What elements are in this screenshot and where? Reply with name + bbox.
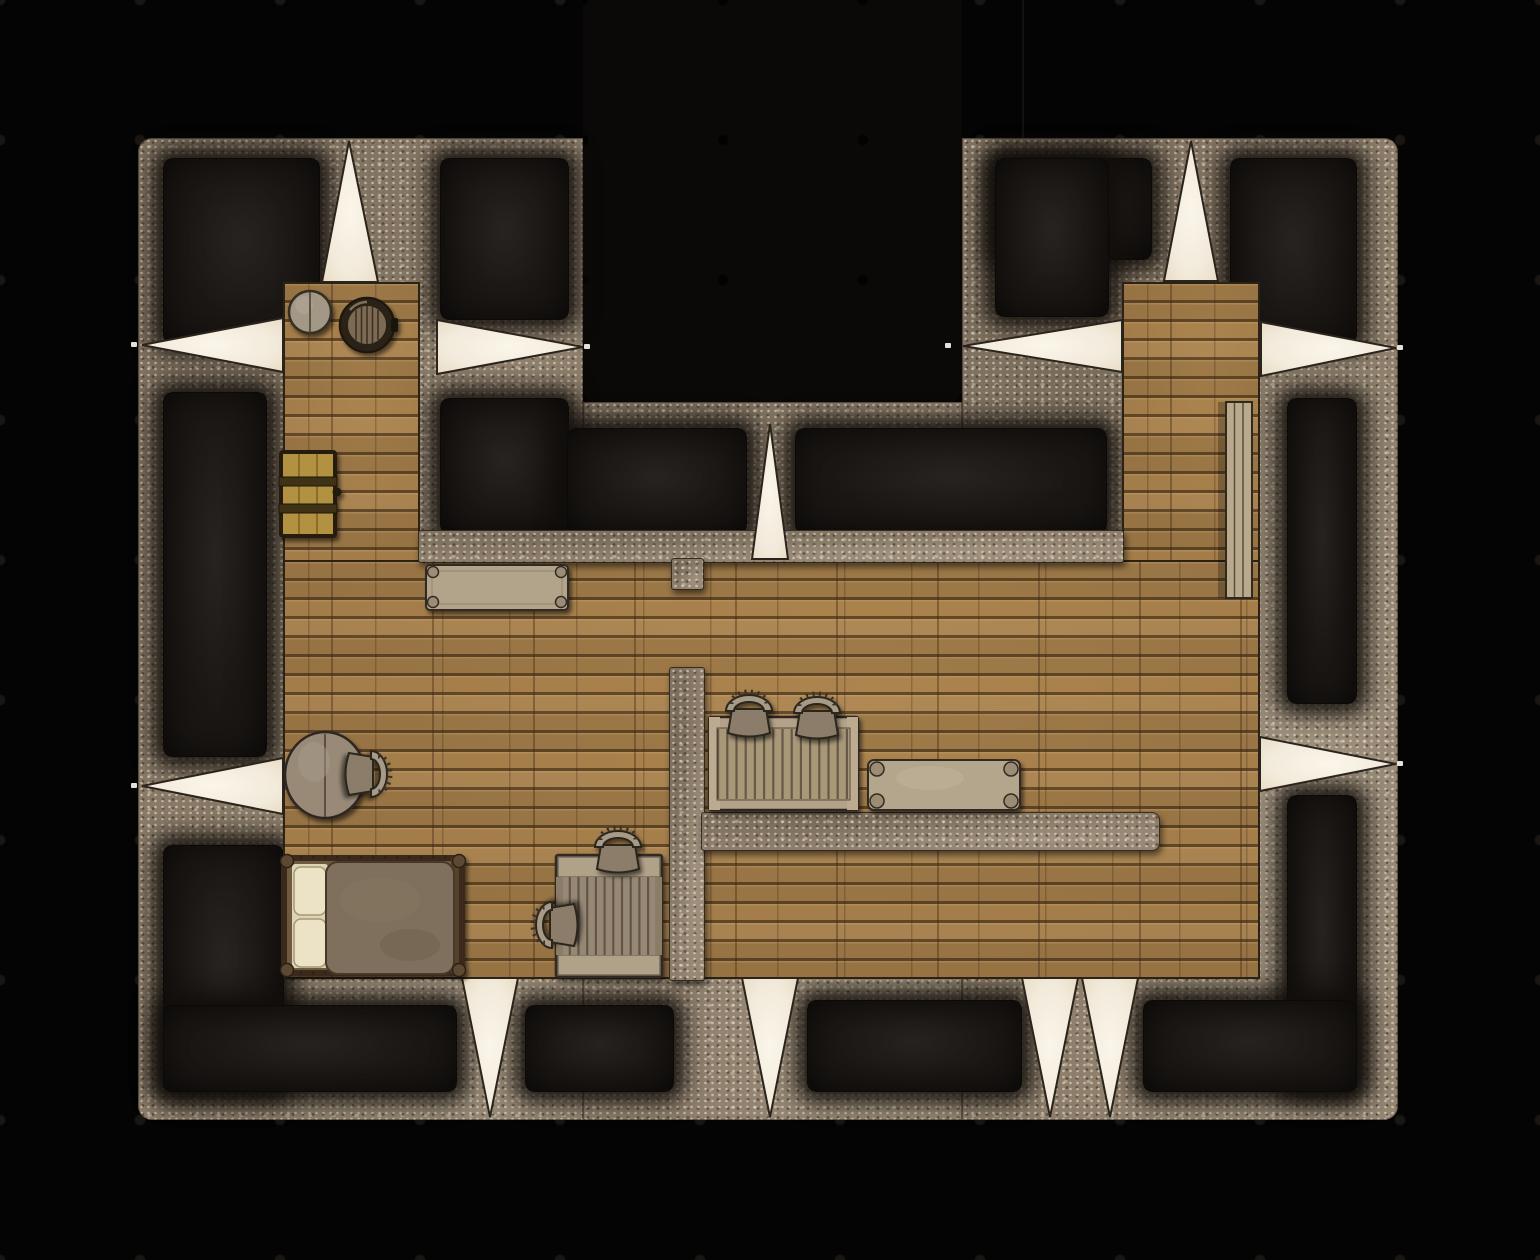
chair: [533, 902, 578, 948]
light-slit-left-lower: [142, 758, 283, 814]
bed: [281, 855, 466, 977]
light-slit-notch-right: [963, 320, 1122, 372]
map-overlay: [0, 0, 1540, 1260]
light-slit-bottom-2: [742, 978, 798, 1117]
light-slit-top-right: [1164, 141, 1218, 281]
light-slit-bottom-1: [462, 978, 518, 1117]
grindstone: [289, 291, 331, 333]
chair: [794, 694, 840, 739]
bench: [868, 760, 1020, 810]
barrel: [340, 298, 398, 352]
light-slit-bottom-3: [1022, 978, 1078, 1117]
light-slit-top-left: [322, 141, 378, 282]
cabinet: [279, 452, 342, 536]
light-slit-mid-notch: [752, 424, 788, 559]
dungeon-floorplan-map: [0, 0, 1540, 1260]
table-long: [426, 565, 568, 610]
chair: [595, 828, 641, 873]
chair: [346, 751, 391, 797]
light-slit-notch-left: [437, 320, 583, 374]
light-slit-bottom-4: [1082, 978, 1138, 1117]
chair: [726, 692, 772, 737]
light-slit-right-lower: [1260, 737, 1396, 791]
shelf: [1218, 402, 1252, 598]
light-slit-right-upper: [1261, 322, 1396, 376]
light-slit-left-upper: [142, 318, 283, 372]
